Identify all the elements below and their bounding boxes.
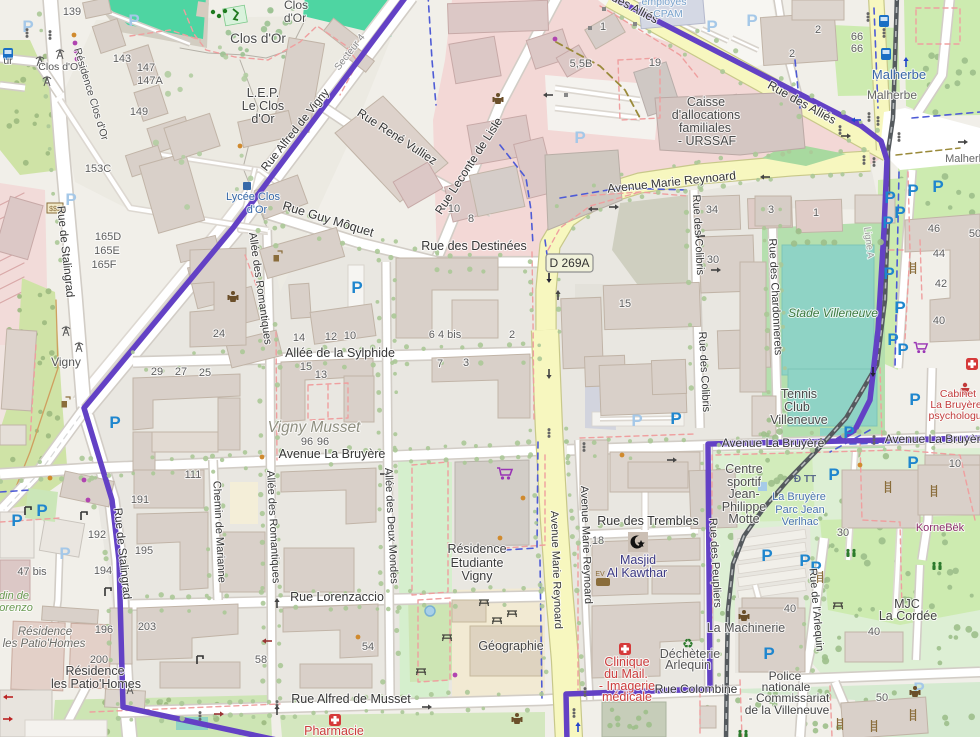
svg-text:196: 196 [95,624,113,636]
svg-text:P: P [882,213,893,232]
svg-text:165F: 165F [91,259,116,271]
svg-text:192: 192 [88,529,106,541]
svg-text:42: 42 [935,278,947,290]
svg-text:6 4 bis: 6 4 bis [429,329,462,341]
svg-text:50: 50 [969,228,980,240]
svg-text:employés: employés [642,0,687,8]
svg-text:Ð TT: Ð TT [794,474,816,485]
svg-text:1: 1 [600,21,606,33]
svg-text:d'Or: d'Or [251,112,274,126]
svg-text:10: 10 [448,203,460,215]
svg-text:194: 194 [94,565,112,577]
svg-text:143: 143 [113,53,131,65]
svg-text:P: P [799,551,810,570]
svg-text:Verlhac: Verlhac [782,516,819,528]
svg-text:P: P [894,298,905,317]
svg-text:66: 66 [851,31,863,43]
svg-text:Lycée Clos: Lycée Clos [226,191,281,203]
svg-text:ur: ur [3,55,13,67]
svg-text:3: 3 [463,357,469,369]
svg-text:les Patio'Homes: les Patio'Homes [51,677,141,691]
svg-text:P: P [761,546,772,565]
svg-text:P: P [897,340,908,359]
svg-text:- URSSAF: - URSSAF [678,134,737,148]
svg-text:8: 8 [468,213,474,225]
svg-text:Caisse: Caisse [687,95,725,109]
svg-text:12: 12 [325,331,337,343]
svg-text:P: P [894,203,905,222]
svg-text:46: 46 [928,223,940,235]
svg-text:Résidence: Résidence [447,542,506,556]
svg-text:3: 3 [768,204,774,216]
svg-text:P: P [746,11,757,30]
svg-text:les Patio'Homes: les Patio'Homes [3,638,86,650]
svg-text:2: 2 [815,24,821,36]
svg-text:149: 149 [130,106,148,118]
svg-text:P: P [763,644,774,663]
svg-text:P: P [11,511,22,530]
svg-text:P: P [909,390,920,409]
svg-text:Vigny Musset: Vigny Musset [268,419,361,436]
svg-text:2: 2 [509,329,515,341]
svg-text:47 bis: 47 bis [17,566,47,578]
svg-text:Masjid: Masjid [620,553,656,567]
svg-text:44: 44 [933,248,945,260]
svg-text:P: P [843,423,854,442]
svg-text:19: 19 [649,57,661,69]
svg-text:10: 10 [344,330,356,342]
svg-text:P: P [631,411,642,430]
svg-text:Pharmacie: Pharmacie [304,724,364,737]
svg-text:2: 2 [789,48,795,60]
svg-text:Malherbe: Malherbe [945,153,980,165]
svg-text:40: 40 [933,315,945,327]
svg-text:P: P [59,544,70,563]
svg-text:147: 147 [137,62,155,74]
svg-text:7: 7 [437,358,443,370]
svg-text:médicale: médicale [602,690,652,704]
svg-text:Arlequin: Arlequin [665,658,711,672]
svg-text:P: P [574,128,585,147]
svg-text:10: 10 [949,458,961,470]
svg-text:Stade Villeneuve: Stade Villeneuve [788,306,878,320]
svg-text:Al Kawthar: Al Kawthar [607,566,667,580]
svg-text:psychologue: psychologue [929,410,980,422]
svg-text:P: P [828,465,839,484]
svg-text:30: 30 [837,527,849,539]
svg-text:Tennis: Tennis [781,387,817,401]
svg-text:P: P [128,11,139,30]
svg-text:5,5B: 5,5B [570,58,593,70]
svg-text:Clos d'Or: Clos d'Or [230,31,286,46]
svg-text:Vigny: Vigny [51,355,81,369]
svg-text:Rue des Destinées: Rue des Destinées [421,239,527,253]
svg-text:Rue Colombine: Rue Colombine [655,682,738,696]
svg-text:P: P [670,409,681,428]
svg-text:Etudiante: Etudiante [451,556,504,570]
svg-text:25: 25 [199,367,211,379]
svg-text:L.E.P.: L.E.P. [247,86,279,100]
svg-text:P: P [907,181,918,200]
svg-text:orenzo: orenzo [0,602,33,614]
svg-text:18: 18 [592,535,604,547]
svg-text:Villeneuve: Villeneuve [770,413,828,427]
svg-text:EV: EV [595,571,605,578]
svg-text:Jean-: Jean- [728,487,759,501]
svg-text:P: P [907,453,918,472]
svg-text:D 269A: D 269A [549,256,589,270]
svg-text:Avenue La Bruyère: Avenue La Bruyère [279,447,386,461]
svg-text:P: P [351,278,362,297]
svg-text:165E: 165E [94,245,120,257]
svg-text:40: 40 [868,626,880,638]
svg-text:Le Clos: Le Clos [242,99,284,113]
svg-text:50: 50 [876,692,888,704]
svg-text:15: 15 [300,361,312,373]
svg-text:de la Villeneuve: de la Villeneuve [745,703,830,717]
svg-text:Motte: Motte [728,512,759,526]
svg-text:Rue Lorenzaccio: Rue Lorenzaccio [290,590,384,604]
svg-text:24: 24 [213,328,225,340]
svg-text:Malherbe: Malherbe [872,67,926,82]
svg-text:din de: din de [0,590,29,602]
svg-text:195: 195 [135,545,153,557]
svg-text:La Cordée: La Cordée [879,609,937,623]
svg-text:Allée de la Sylphide: Allée de la Sylphide [285,346,395,360]
svg-text:Avenue La Bruyère: Avenue La Bruyère [885,432,980,446]
svg-text:13: 13 [315,369,327,381]
svg-text:54: 54 [362,641,374,653]
svg-text:147A: 147A [137,75,163,87]
svg-text:Rue Alfred de Musset: Rue Alfred de Musset [291,692,411,706]
svg-text:d'Or: d'Or [247,204,268,216]
svg-text:d'Or: d'Or [284,11,306,25]
svg-text:27: 27 [175,366,187,378]
svg-text:Résidence: Résidence [65,664,124,678]
svg-text:La Bruyère: La Bruyère [772,491,826,503]
svg-text:58: 58 [255,654,267,666]
svg-text:P: P [932,177,943,196]
svg-text:P: P [109,413,120,432]
svg-text:34: 34 [706,204,718,216]
svg-text:96: 96 [301,436,313,448]
svg-text:Vigny: Vigny [461,569,493,583]
svg-text:66: 66 [851,43,863,55]
svg-text:Résidence: Résidence [18,626,72,638]
svg-text:203: 203 [138,621,156,633]
svg-text:29: 29 [151,366,163,378]
svg-text:Rue des Trembles: Rue des Trembles [597,514,698,528]
svg-text:d'allocations: d'allocations [672,108,740,122]
svg-text:La Machinerie: La Machinerie [707,621,786,635]
svg-text:P: P [36,501,47,520]
svg-text:Avenue La Bruyère: Avenue La Bruyère [722,436,825,450]
svg-text:15: 15 [619,298,631,310]
svg-text:Club: Club [784,400,810,414]
svg-text:30: 30 [707,254,719,266]
svg-text:P: P [706,17,717,36]
svg-text:96: 96 [317,436,329,448]
svg-text:Parc Jean: Parc Jean [775,504,825,516]
svg-text:Malherbe: Malherbe [867,88,917,102]
svg-text:CPAM: CPAM [653,8,683,20]
svg-text:KorneBëk: KorneBëk [916,522,965,534]
svg-text:Centre: Centre [725,462,763,476]
svg-text:1: 1 [813,207,819,219]
svg-text:139: 139 [63,6,81,18]
svg-text:familiales: familiales [679,121,731,135]
svg-text:14: 14 [293,332,305,344]
svg-text:153C: 153C [85,163,111,175]
svg-text:Géographie: Géographie [478,639,543,653]
svg-text:165D: 165D [95,231,121,243]
svg-text:200: 200 [90,654,108,666]
svg-text:191: 191 [131,494,149,506]
svg-text:40: 40 [784,603,796,615]
svg-text:P: P [883,264,894,283]
svg-text:111: 111 [185,469,202,481]
